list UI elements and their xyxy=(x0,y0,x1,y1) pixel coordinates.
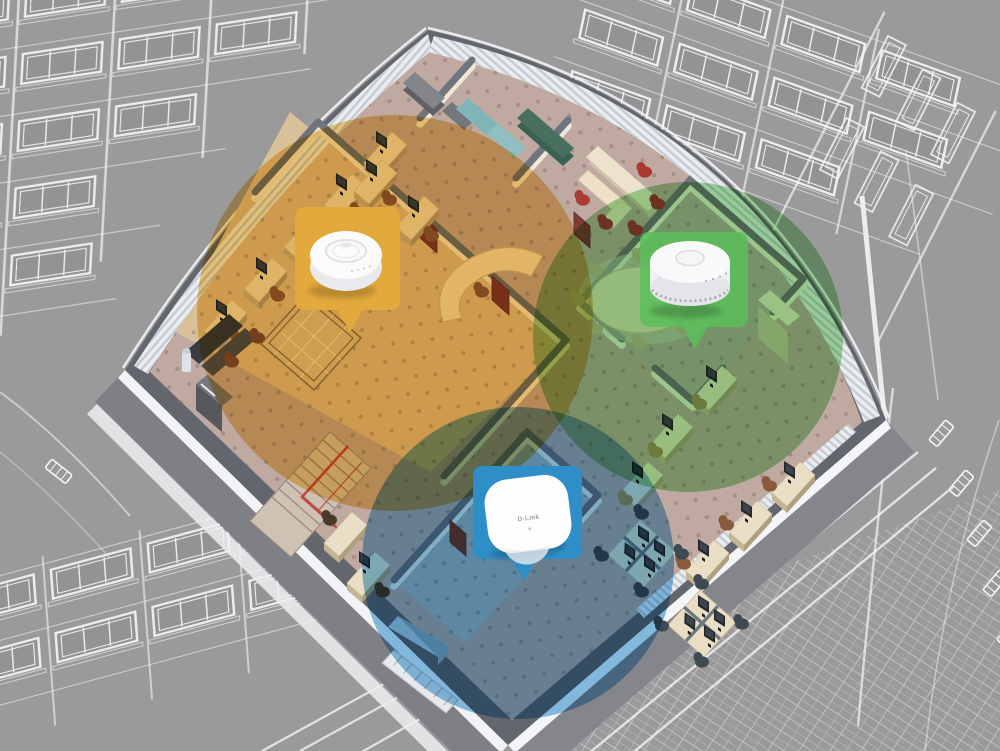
wifi-coverage-illustration: D-Link xyxy=(0,0,1000,751)
illustration-canvas: D-Link xyxy=(0,0,1000,751)
device-shadow xyxy=(650,304,722,318)
access-point-yellow xyxy=(308,231,382,298)
water-cooler xyxy=(182,348,191,372)
